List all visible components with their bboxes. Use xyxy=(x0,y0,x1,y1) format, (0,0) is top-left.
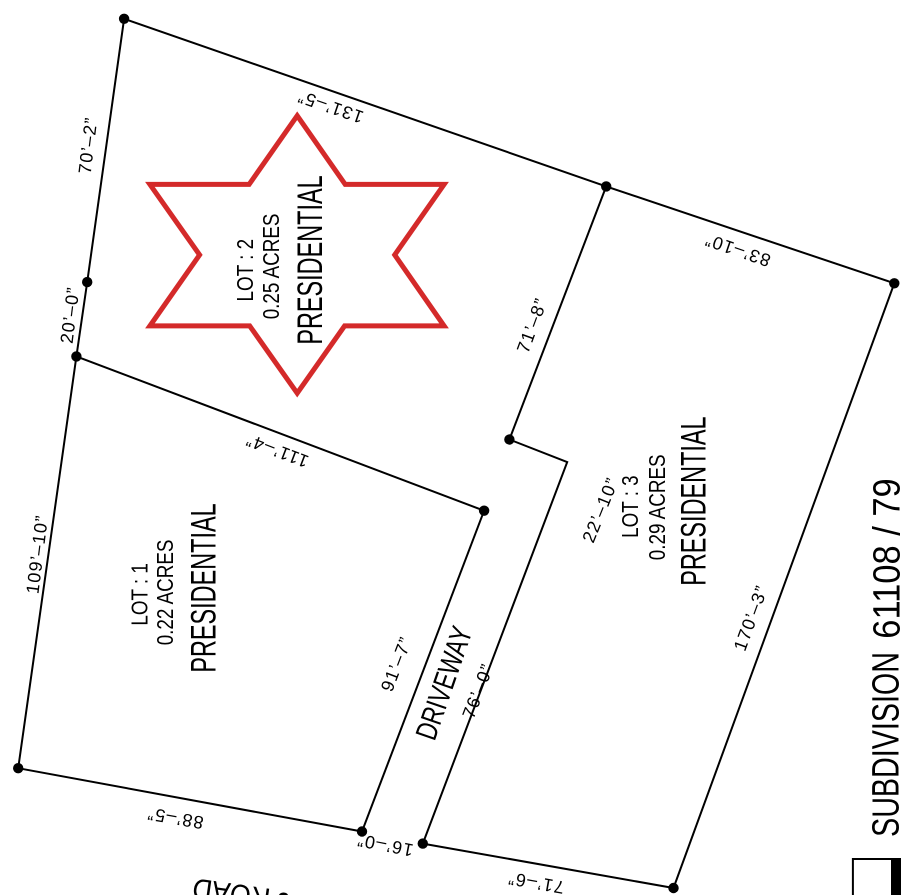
svg-text:16’–0”: 16’–0” xyxy=(355,830,415,861)
svg-text:170’–3”: 170’–3” xyxy=(730,582,772,653)
svg-text:83’–10”: 83’–10” xyxy=(702,229,773,270)
svg-text:71’–6”: 71’–6” xyxy=(506,868,566,895)
svg-text:88’–5”: 88’–5” xyxy=(145,803,205,833)
svg-text:PRESIDENTIAL: PRESIDENTIAL xyxy=(185,503,224,672)
svg-text:LOT : 3: LOT : 3 xyxy=(618,475,643,538)
svg-text:70’–2”: 70’–2” xyxy=(75,116,102,175)
svg-text:LOT : 2: LOT : 2 xyxy=(233,239,258,302)
svg-text:PRESIDENTIAL: PRESIDENTIAL xyxy=(675,416,714,585)
svg-text:ROAD: ROAD xyxy=(191,871,273,895)
svg-text:91’–7”: 91’–7” xyxy=(377,634,416,695)
svg-text:61108 / 79: 61108 / 79 xyxy=(865,478,901,638)
svg-text:131’–5”: 131’–5” xyxy=(295,86,366,127)
svg-text:LOT : 1: LOT : 1 xyxy=(128,563,153,626)
svg-text:SUBDIVISION: SUBDIVISION xyxy=(866,652,901,837)
svg-text:0.29 ACRES: 0.29 ACRES xyxy=(645,454,670,560)
svg-text:0.22 ACRES: 0.22 ACRES xyxy=(153,539,178,645)
svg-text:0.25 ACRES: 0.25 ACRES xyxy=(259,213,284,319)
svg-text:22’–10”: 22’–10” xyxy=(578,475,622,546)
svg-text:111’–4”: 111’–4” xyxy=(243,429,312,471)
svg-text:PRESIDENTIAL: PRESIDENTIAL xyxy=(292,175,331,344)
